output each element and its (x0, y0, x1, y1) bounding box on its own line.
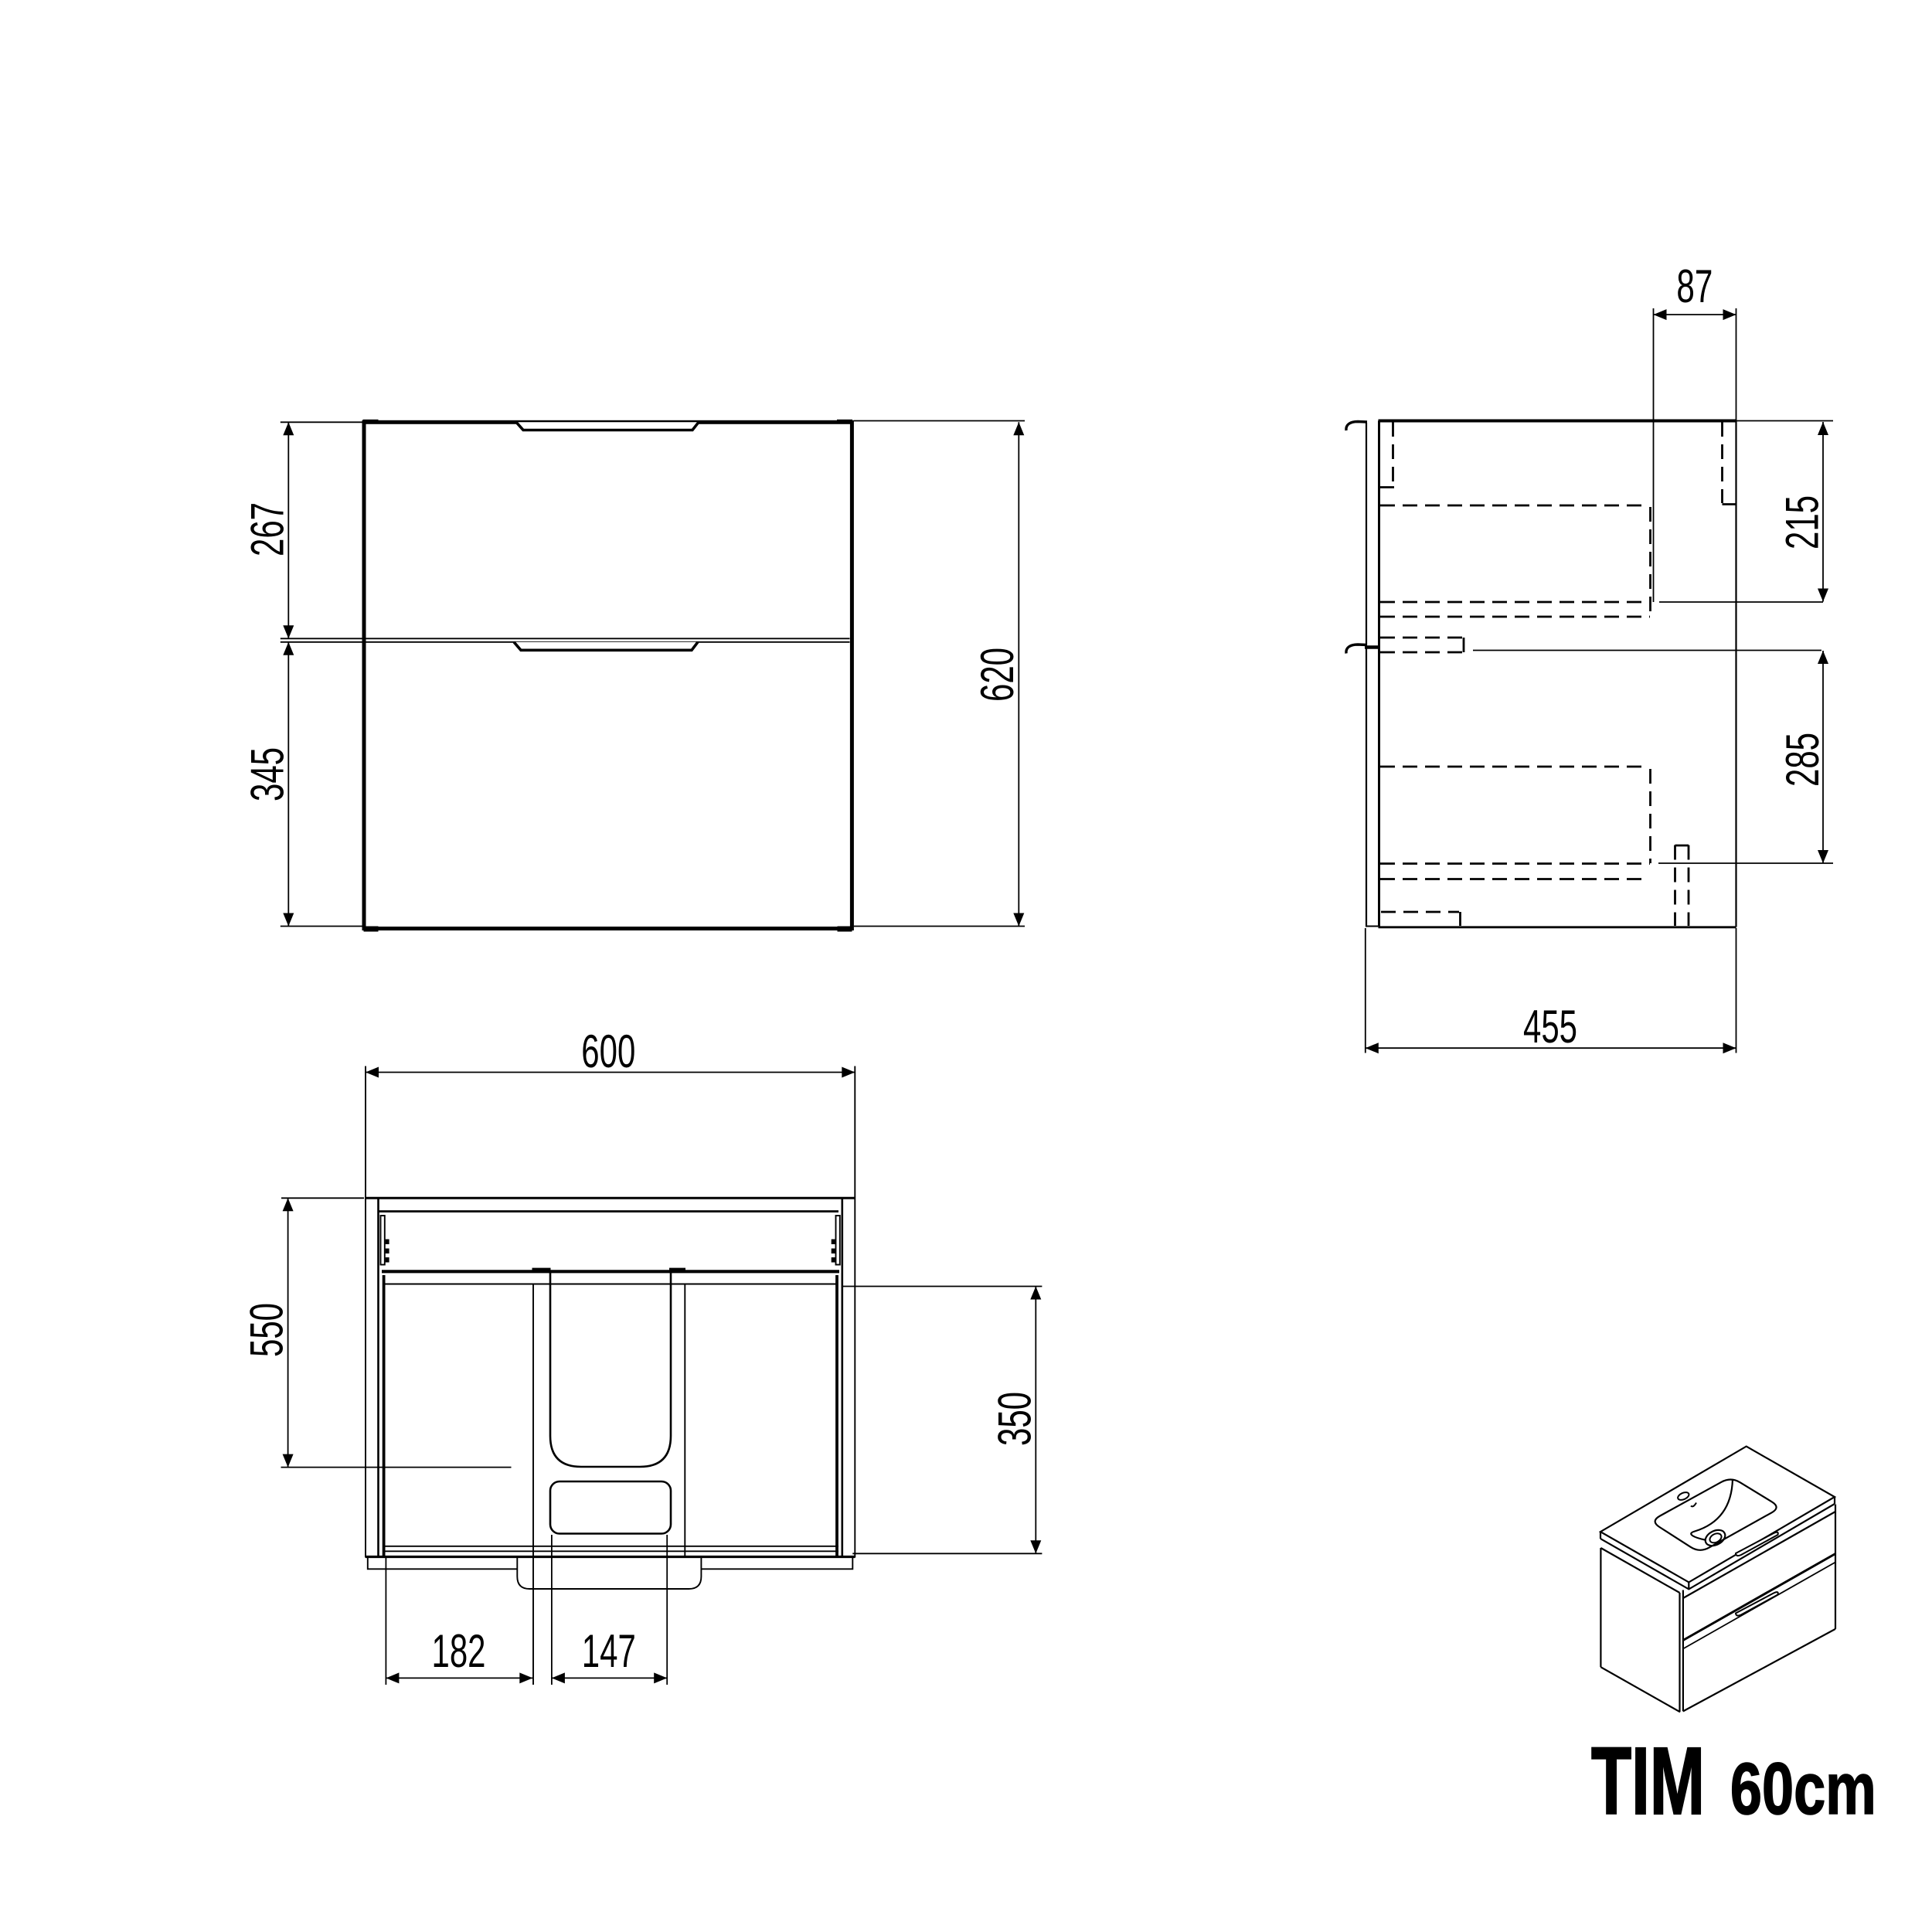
svg-text:285: 285 (1777, 733, 1828, 787)
svg-text:182: 182 (432, 1625, 486, 1677)
svg-text:267: 267 (241, 502, 293, 556)
svg-text:350: 350 (988, 1392, 1040, 1446)
svg-text:455: 455 (1523, 1001, 1577, 1053)
svg-text:147: 147 (582, 1625, 636, 1677)
svg-text:60cm: 60cm (1730, 1748, 1876, 1830)
svg-text:87: 87 (1676, 260, 1713, 312)
svg-text:215: 215 (1777, 495, 1828, 549)
svg-text:345: 345 (241, 747, 293, 801)
svg-text:600: 600 (581, 1026, 635, 1077)
svg-text:550: 550 (241, 1303, 293, 1357)
svg-text:620: 620 (971, 648, 1023, 702)
svg-text:TIM: TIM (1591, 1728, 1705, 1835)
